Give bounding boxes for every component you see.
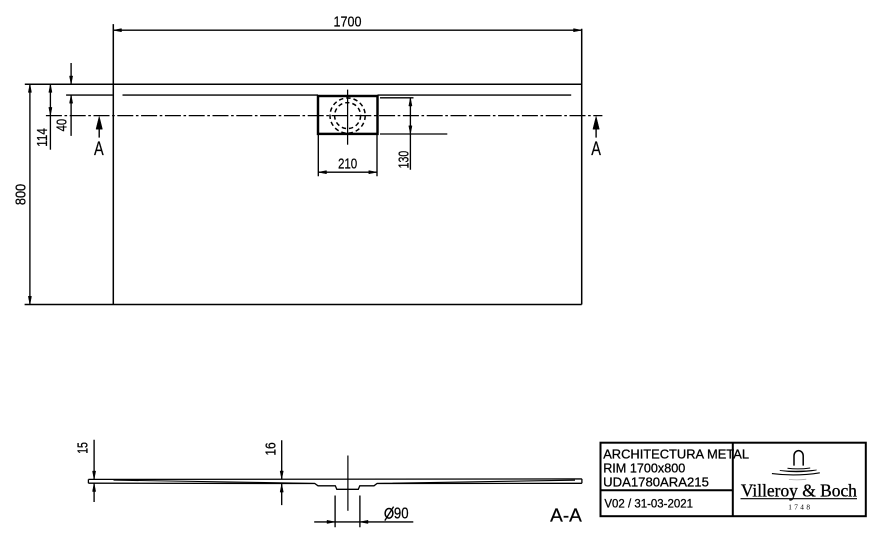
svg-text:114: 114: [34, 128, 51, 147]
svg-text:1700: 1700: [334, 14, 362, 31]
svg-text:800: 800: [12, 184, 29, 205]
svg-text:90: 90: [394, 506, 409, 523]
svg-text:40: 40: [53, 119, 70, 132]
svg-text:A: A: [94, 138, 104, 160]
svg-text:Villeroy & Boch: Villeroy & Boch: [741, 480, 857, 500]
svg-text:ARCHITECTURA METAL: ARCHITECTURA METAL: [603, 446, 749, 461]
svg-text:15: 15: [75, 442, 92, 454]
svg-text:V02 / 31-03-2021: V02 / 31-03-2021: [604, 496, 693, 510]
svg-text:16: 16: [263, 442, 280, 455]
svg-text:A-A: A-A: [550, 504, 582, 525]
svg-text:210: 210: [338, 156, 357, 173]
svg-text:1748: 1748: [788, 502, 810, 511]
svg-text:UDA1780ARA215: UDA1780ARA215: [603, 474, 709, 489]
svg-text:130: 130: [396, 151, 413, 169]
svg-text:A: A: [591, 138, 601, 160]
